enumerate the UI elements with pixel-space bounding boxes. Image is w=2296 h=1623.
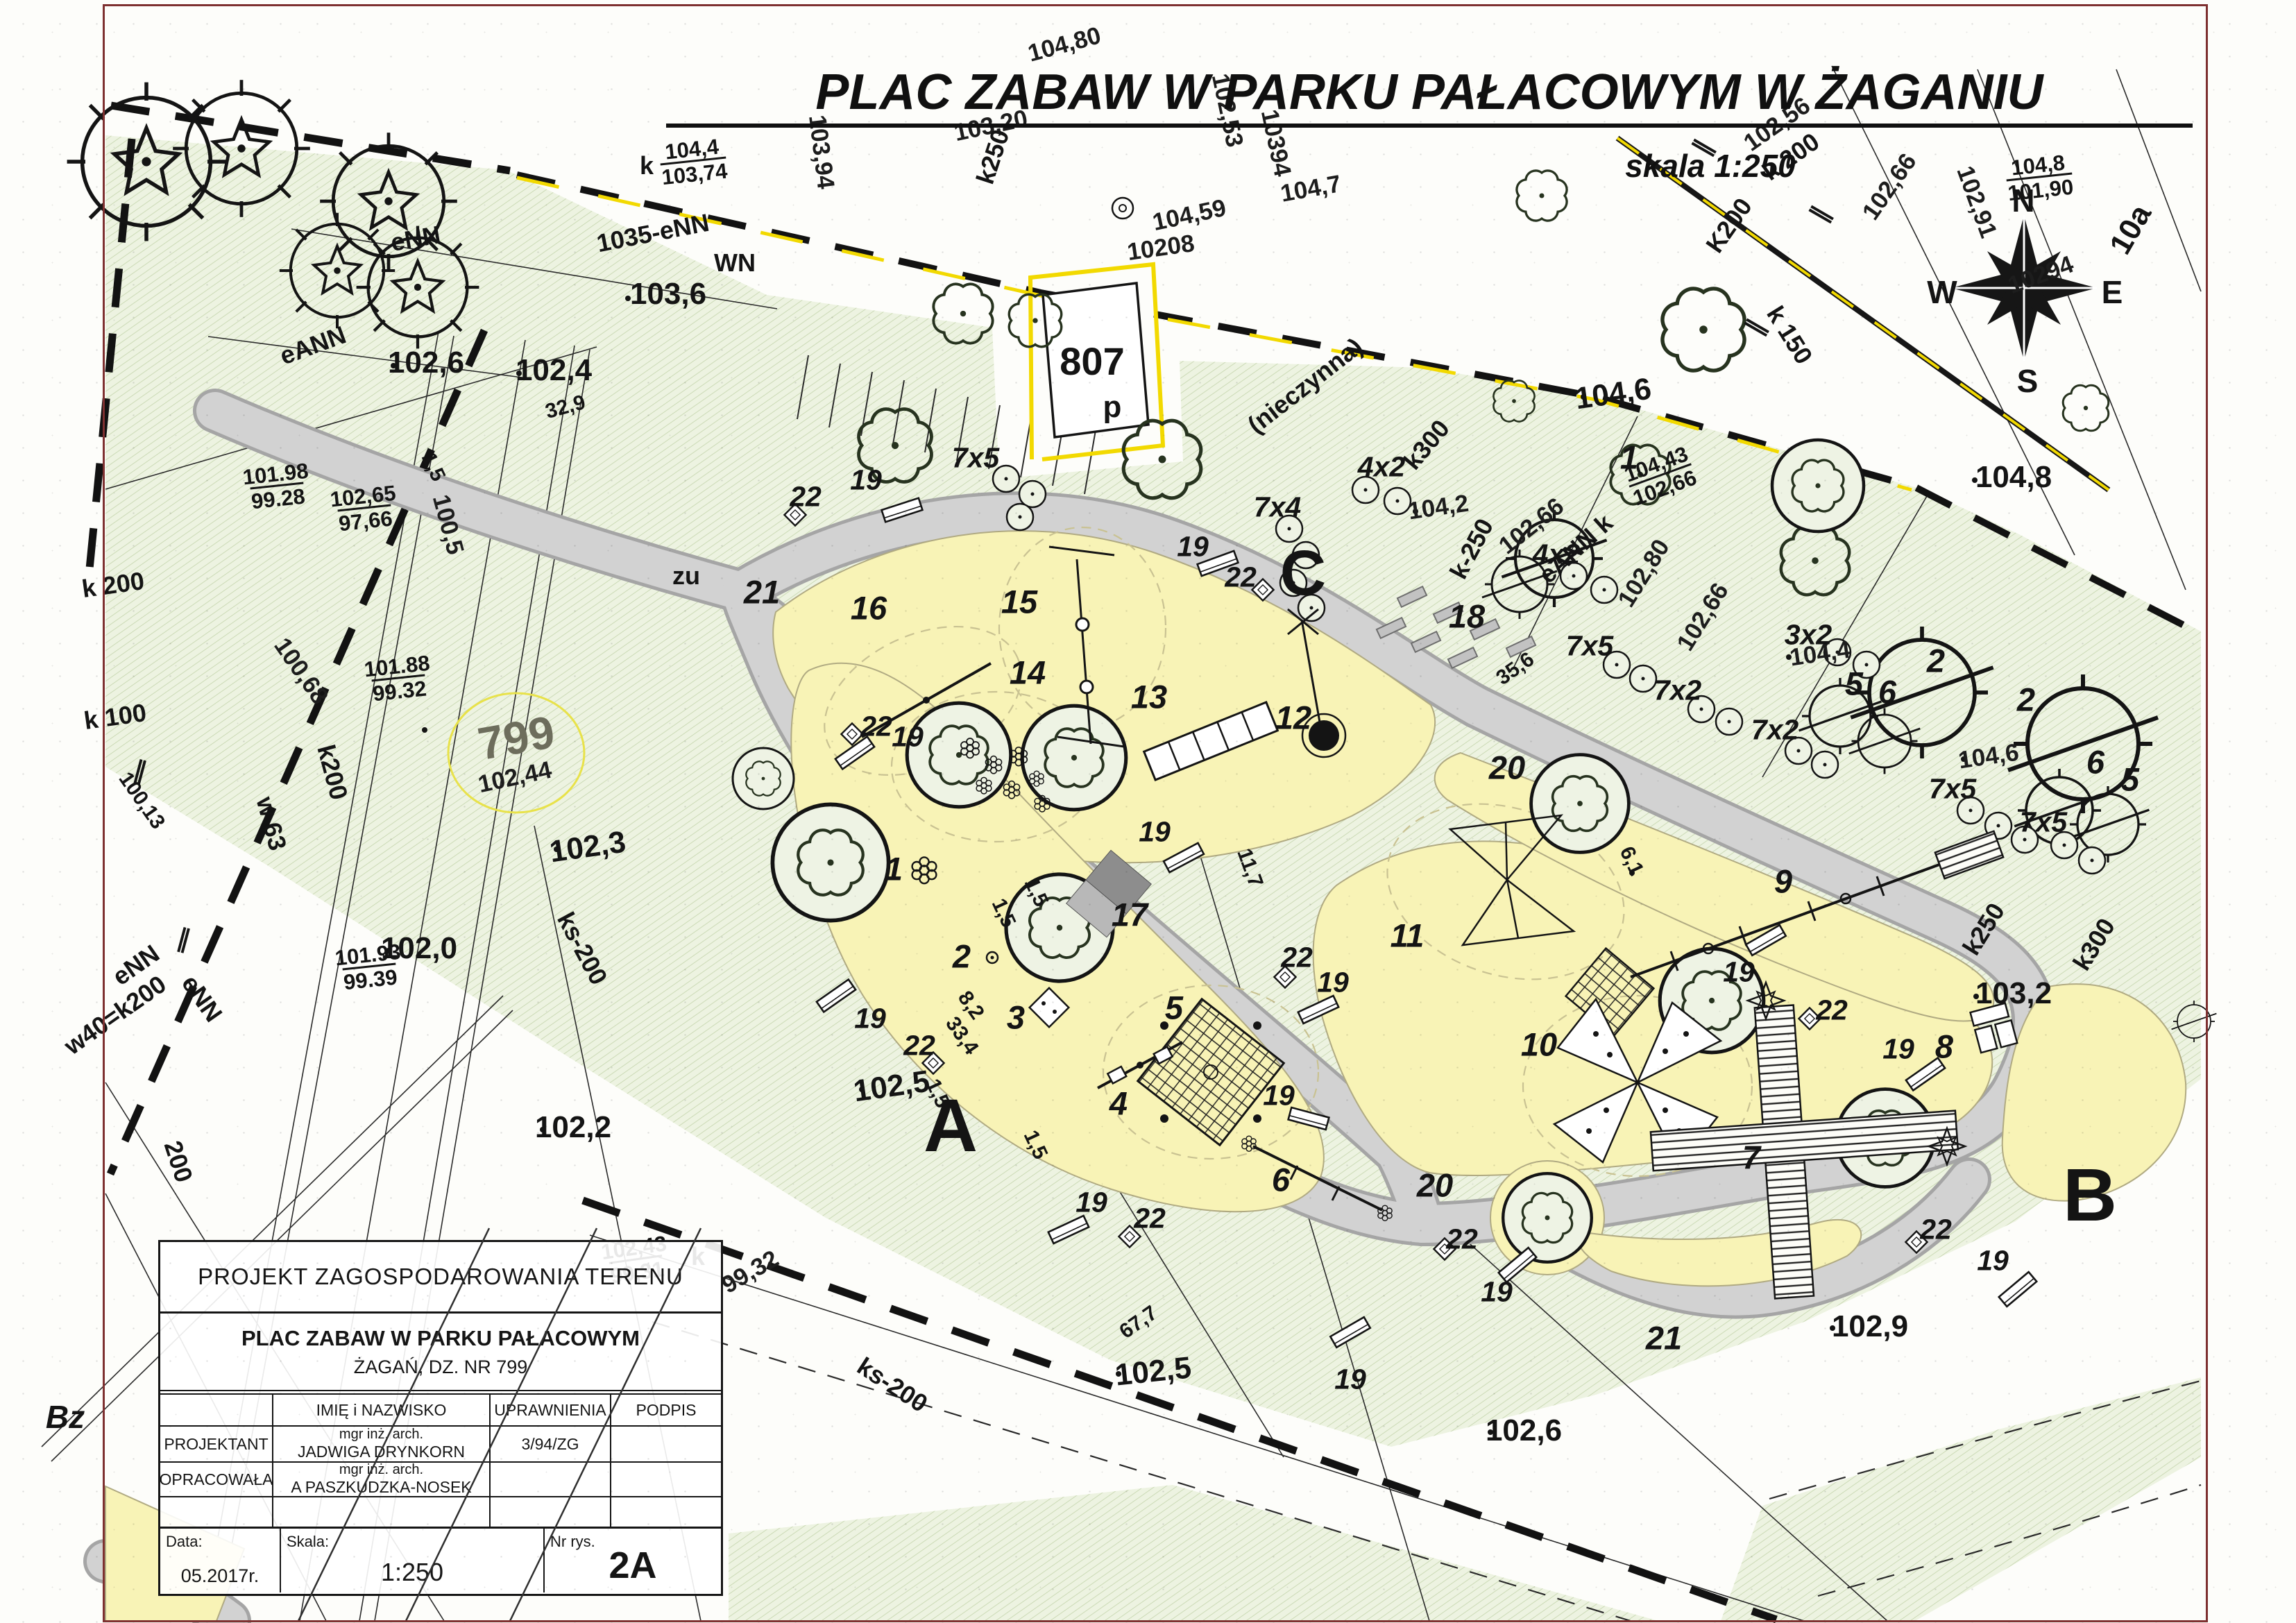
col-licence-header: UPRAWNIENIA xyxy=(491,1395,611,1427)
row3-signature xyxy=(611,1497,721,1528)
project-name: PLAC ZABAW W PARKU PAŁACOWYM xyxy=(241,1326,640,1351)
signature-table: IMIĘ i NAZWISKO UPRAWNIENIA PODPIS PROJE… xyxy=(160,1395,721,1528)
row1-role: PROJEKTANT xyxy=(160,1427,273,1463)
row1-signature xyxy=(611,1427,721,1463)
building-807 xyxy=(1030,198,1163,459)
scale-cell: Skala: 1:250 xyxy=(281,1529,545,1592)
project-location: ŻAGAŃ, DZ. NR 799 xyxy=(354,1357,528,1378)
drawing-scale: skala 1:250 xyxy=(1547,147,1873,185)
date-cell: Data: 05.2017r. xyxy=(160,1529,281,1592)
site-plan-page: ABC1234567891011121314151617182020212115… xyxy=(0,0,2296,1623)
empty-header-cell xyxy=(160,1395,273,1427)
title-block-caption: PROJEKT ZAGOSPODAROWANIA TERENU xyxy=(160,1242,721,1314)
row3-name xyxy=(273,1497,491,1528)
row3-role xyxy=(160,1497,273,1528)
row1-licence: 3/94/ZG xyxy=(491,1427,611,1463)
row2-signature xyxy=(611,1463,721,1497)
row1-name-cell: mgr inż. arch. JADWIGA DRYNKORN xyxy=(273,1427,491,1463)
title-block-project: PLAC ZABAW W PARKU PAŁACOWYM ŻAGAŃ, DZ. … xyxy=(160,1314,721,1395)
compass-rose xyxy=(1950,214,2098,362)
row3-licence xyxy=(491,1497,611,1528)
title-block-footer: Data: 05.2017r. Skala: 1:250 Nr rys. 2A xyxy=(160,1528,721,1592)
title-block: PROJEKT ZAGOSPODAROWANIA TERENU PLAC ZAB… xyxy=(158,1240,723,1596)
col-signature-header: PODPIS xyxy=(611,1395,721,1427)
drawing-title: PLAC ZABAW W PARKU PAŁACOWYM W ŻAGANIU xyxy=(666,64,2193,128)
row2-name-cell: mgr inż. arch. A PASZKUDZKA-NOSEK xyxy=(273,1463,491,1497)
drawing-number-cell: Nr rys. 2A xyxy=(545,1529,721,1592)
col-name-header: IMIĘ i NAZWISKO xyxy=(273,1395,491,1427)
row2-role: OPRACOWAŁA xyxy=(160,1463,273,1497)
row2-licence xyxy=(491,1463,611,1497)
